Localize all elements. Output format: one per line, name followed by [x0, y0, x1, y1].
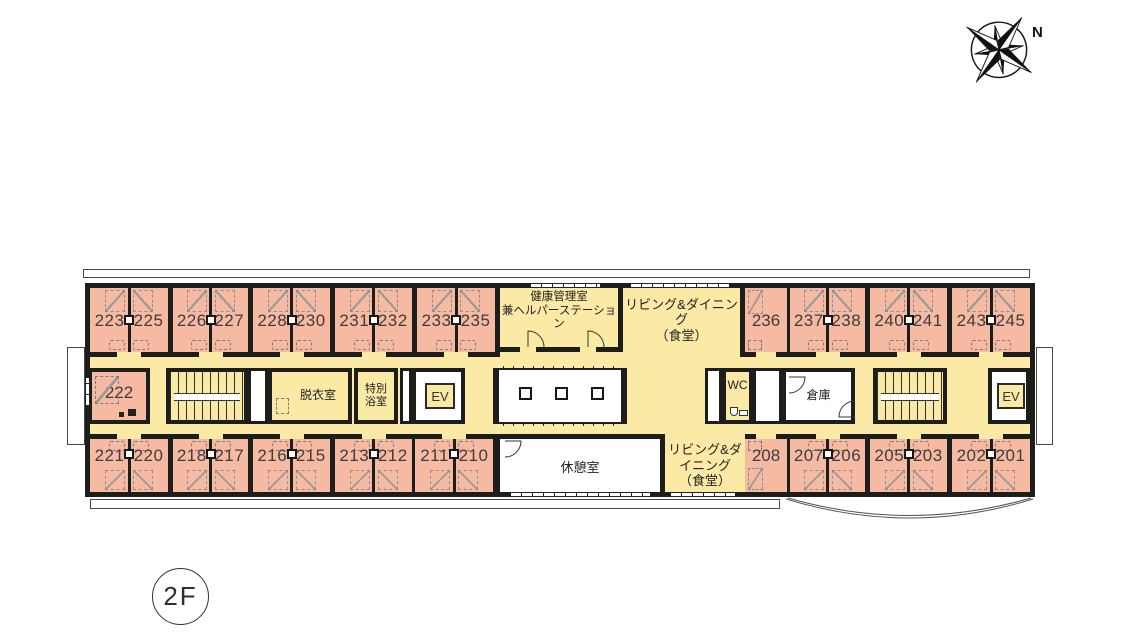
bed-symbol [215, 290, 235, 312]
room-number: 227 [211, 312, 249, 329]
room-entry-door [816, 352, 840, 357]
plumbing-fixture [904, 315, 914, 325]
elevator-right-shaft: EV [988, 368, 1030, 424]
compass-rose-icon [953, 2, 1045, 94]
room-pair: 207206 [790, 439, 865, 492]
health-room-door [520, 347, 536, 352]
room-entry-door [280, 434, 304, 439]
elevator-left: EV [425, 383, 455, 409]
desk-symbol [354, 340, 370, 350]
party-wall [372, 439, 375, 492]
rest-room-label: 休憩室 [500, 439, 660, 497]
bed-symbol [995, 470, 1015, 490]
desk-symbol [832, 340, 848, 350]
bed-symbol [967, 470, 987, 490]
room-number: 210 [454, 447, 493, 464]
room-number: 232 [374, 312, 413, 329]
plumbing-fixture [986, 449, 996, 459]
bed-symbol [133, 290, 153, 312]
room-entry-door [816, 434, 840, 439]
room-number: 220 [129, 447, 168, 464]
plumbing-fixture [124, 315, 134, 325]
dressing-room-label: 脱衣室 [280, 389, 356, 403]
bed-symbol [885, 470, 905, 490]
storage-label: 倉庫 [786, 389, 851, 403]
room-number: 225 [129, 312, 168, 329]
room-entry-door [199, 434, 223, 439]
dressing-room: 脱衣室 [268, 368, 352, 424]
balcony-outline-top [83, 269, 1030, 278]
shaft-glazing [503, 422, 617, 426]
shaft-glazing [503, 366, 617, 370]
room-entry-door [979, 434, 1003, 439]
plumbing-fixture [206, 315, 216, 325]
bed-symbol [432, 290, 452, 312]
desk-symbol [889, 340, 905, 350]
desk-symbol [460, 340, 476, 350]
fixture-symbol [128, 409, 136, 416]
room-pair: 237238 [790, 288, 865, 352]
room-entry-door [897, 434, 921, 439]
plumbing-fixture [206, 449, 216, 459]
toilet-icon [730, 407, 738, 416]
window [85, 378, 90, 406]
room-pair: 211210 [415, 439, 493, 492]
party-wall [128, 439, 131, 492]
plumbing-fixture [823, 315, 833, 325]
exterior-wall-right [1030, 283, 1035, 497]
desk-symbol [215, 340, 231, 350]
bed-symbol [215, 470, 235, 490]
bed-symbol [832, 290, 852, 312]
vestibule [248, 368, 268, 424]
room-number: 235 [456, 312, 495, 329]
bed-symbol [296, 290, 316, 312]
service-space [705, 368, 722, 424]
bed-symbol [378, 290, 398, 312]
bed-symbol [105, 470, 125, 490]
room-pair: 243245 [952, 288, 1030, 352]
bed-symbol [458, 470, 478, 490]
fixture-symbol [119, 412, 124, 417]
bed-symbol [105, 290, 125, 312]
room-pair: 221220 [90, 439, 168, 492]
bed-symbol [187, 290, 207, 312]
room-number: 212 [374, 447, 413, 464]
balcony-outline-right [1036, 347, 1053, 445]
desk-symbol [133, 340, 149, 350]
duct-space [400, 368, 412, 424]
room-pair: 226227 [173, 288, 248, 352]
living-dining-area-top: リビング&ダイニング （食堂） [623, 283, 740, 357]
living-dining-top-label: リビング&ダイニング （食堂） [623, 283, 740, 357]
rest-room: 休憩室 [495, 434, 665, 497]
special-bath-label: 特別 浴室 [358, 372, 394, 420]
bed-symbol [95, 376, 119, 404]
room-entry-door [199, 352, 223, 357]
column [591, 387, 604, 400]
desk-symbol [296, 340, 312, 350]
floor-badge: 2F [152, 568, 209, 625]
room-pair: 240241 [870, 288, 947, 352]
staircase-left [166, 368, 248, 424]
plumbing-fixture [986, 315, 996, 325]
plumbing-fixture [287, 315, 297, 325]
elevator-right: EV [997, 383, 1025, 409]
desk-symbol [378, 340, 394, 350]
plumbing-fixture [904, 449, 914, 459]
party-wall [826, 439, 829, 492]
room-number: 230 [292, 312, 331, 329]
floor-plan-canvas: N リビング&ダイニング （食堂） リビング&ダイニング （食堂） [0, 0, 1121, 644]
bed-symbol [885, 290, 905, 312]
room-pair: 231232 [335, 288, 412, 352]
plumbing-fixture [287, 449, 297, 459]
wc-label: WC [726, 379, 749, 393]
room-pair: 205203 [870, 439, 947, 492]
room-number: 201 [991, 447, 1030, 464]
room-pair: 213212 [335, 439, 412, 492]
health-management-room: 健康管理室 兼ヘルパーステーション [500, 288, 623, 352]
room-entry-door [362, 352, 386, 357]
desk-symbol [971, 340, 987, 350]
room-number: 236 [745, 312, 787, 329]
balcony-outline-bottom [90, 499, 780, 509]
special-bath-room: 特別 浴室 [354, 368, 398, 424]
plumbing-fixture [823, 449, 833, 459]
window [670, 492, 735, 497]
window [630, 283, 730, 288]
room-pair: 218217 [173, 439, 248, 492]
bed-symbol [268, 470, 288, 490]
desk-symbol [272, 340, 288, 350]
room-single: 208 [745, 439, 787, 492]
bed-symbol [913, 470, 933, 490]
desk-symbol [748, 340, 762, 350]
bed-symbol [967, 290, 987, 312]
bed-symbol [804, 290, 824, 312]
window [510, 492, 650, 497]
room-entry-door [444, 352, 468, 357]
room-number: 203 [909, 447, 948, 464]
bed-symbol [268, 290, 288, 312]
room-number: 241 [909, 312, 948, 329]
bed-symbol [350, 290, 370, 312]
bed-symbol [995, 290, 1015, 312]
desk-symbol [109, 340, 125, 350]
room-entry-door [280, 352, 304, 357]
desk-symbol [995, 340, 1011, 350]
bed-symbol [350, 470, 370, 490]
bed-symbol [832, 470, 852, 490]
bed-symbol [460, 290, 480, 312]
plumbing-fixture [451, 315, 461, 325]
room-pair: 223225 [90, 288, 168, 352]
bed-symbol [804, 470, 824, 490]
wc-room: WC [722, 368, 753, 424]
room-entry-door [117, 352, 141, 357]
room-number: 215 [292, 447, 331, 464]
room-number: 217 [211, 447, 249, 464]
party-wall [990, 439, 993, 492]
desk-symbol [436, 340, 452, 350]
column [519, 387, 532, 400]
living-dining-area-bottom: リビング&ダイニング （食堂） [665, 434, 745, 497]
room-pair: 202201 [952, 439, 1030, 492]
party-wall [209, 439, 212, 492]
column [555, 387, 568, 400]
room-number: 245 [991, 312, 1030, 329]
room-entry-door [897, 352, 921, 357]
health-room-door [580, 347, 596, 352]
service-space [753, 368, 782, 424]
bed-symbol [913, 290, 933, 312]
room-pair: 233235 [417, 288, 495, 352]
bed-symbol [296, 470, 316, 490]
room-entry-door [979, 352, 1003, 357]
plumbing-fixture [449, 449, 459, 459]
bed-symbol [430, 470, 450, 490]
balcony-outline-left [67, 347, 85, 445]
bed-symbol [187, 470, 207, 490]
building: リビング&ダイニング （食堂） リビング&ダイニング （食堂） 健康管理室 兼ヘ… [85, 283, 1035, 497]
fixture-symbol [276, 398, 289, 414]
living-dining-bottom-label: リビング&ダイニング （食堂） [665, 434, 745, 497]
storage-room: 倉庫 [782, 368, 855, 424]
room-single: 236 [745, 288, 787, 352]
party-wall [290, 439, 293, 492]
light-court-shaft [493, 368, 627, 424]
bed-symbol [748, 468, 763, 490]
elevator-left-shaft: EV [412, 368, 465, 424]
bed-symbol [378, 470, 398, 490]
room-entry-door [756, 352, 776, 357]
health-room-label: 健康管理室 兼ヘルパーステーション [500, 288, 618, 335]
desk-symbol [808, 340, 824, 350]
room-entry-door [362, 434, 386, 439]
compass-north-label: N [1032, 24, 1043, 41]
desk-symbol [913, 340, 929, 350]
room-pair: 216215 [253, 439, 330, 492]
staircase-right [873, 368, 947, 424]
party-wall [453, 439, 456, 492]
plumbing-fixture [369, 315, 379, 325]
room-number: 206 [828, 447, 866, 464]
plumbing-fixture [124, 449, 134, 459]
plumbing-fixture [369, 449, 379, 459]
room-entry-door [442, 434, 466, 439]
desk-symbol [191, 340, 207, 350]
room-number: 238 [828, 312, 866, 329]
room-222: 222 [88, 368, 150, 424]
room-pair: 228230 [253, 288, 330, 352]
floor-label: 2F [163, 581, 197, 612]
room-entry-door [756, 434, 776, 439]
window [530, 283, 600, 288]
room-number: 208 [745, 447, 787, 464]
room-entry-door [117, 434, 141, 439]
bed-symbol [133, 470, 153, 490]
party-wall [907, 439, 910, 492]
sink-icon [739, 410, 748, 416]
